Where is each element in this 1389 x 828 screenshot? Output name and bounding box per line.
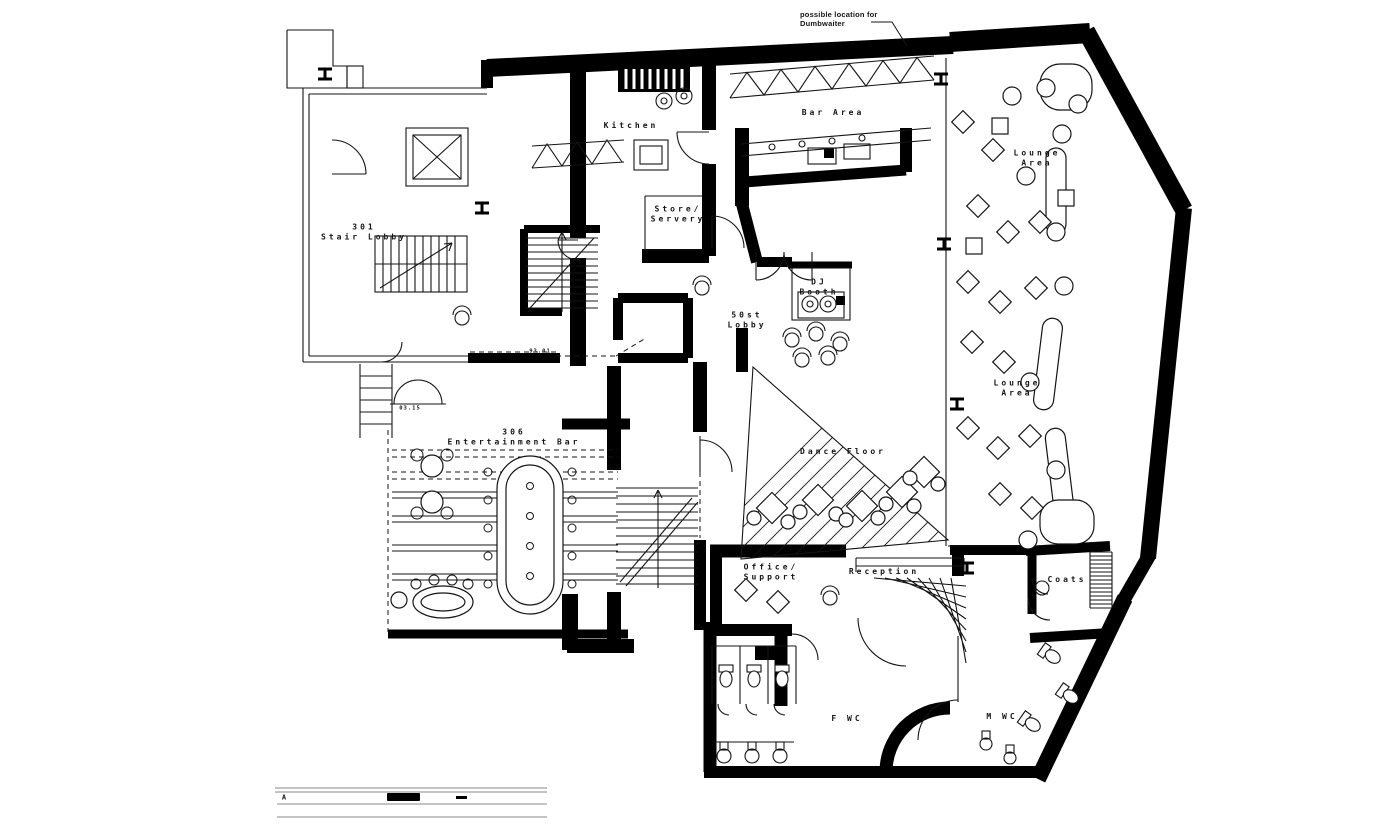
lounge-furniture — [952, 64, 1094, 549]
office-tables — [735, 579, 790, 614]
title-block-entry — [387, 793, 420, 801]
kitchen-grill — [618, 66, 690, 92]
floor-plan-drawing — [0, 0, 1389, 828]
title-block-dash — [456, 796, 467, 799]
duct — [755, 646, 777, 660]
bar-equipment — [824, 148, 834, 158]
floor-plan-sheet: possible location for DumbwaiterKitchenB… — [0, 0, 1389, 828]
title-block-lines — [275, 788, 547, 817]
